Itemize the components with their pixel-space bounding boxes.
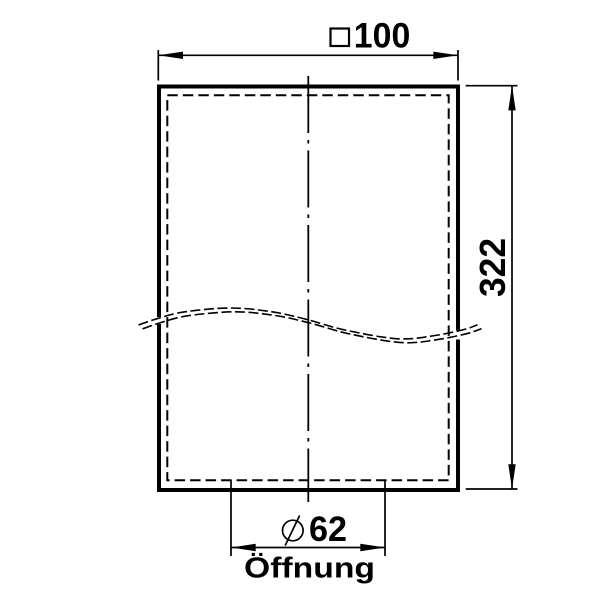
svg-text:Öffnung: Öffnung	[244, 553, 375, 585]
svg-text:62: 62	[309, 510, 347, 549]
svg-text:100: 100	[354, 17, 411, 56]
svg-text:322: 322	[472, 238, 513, 297]
